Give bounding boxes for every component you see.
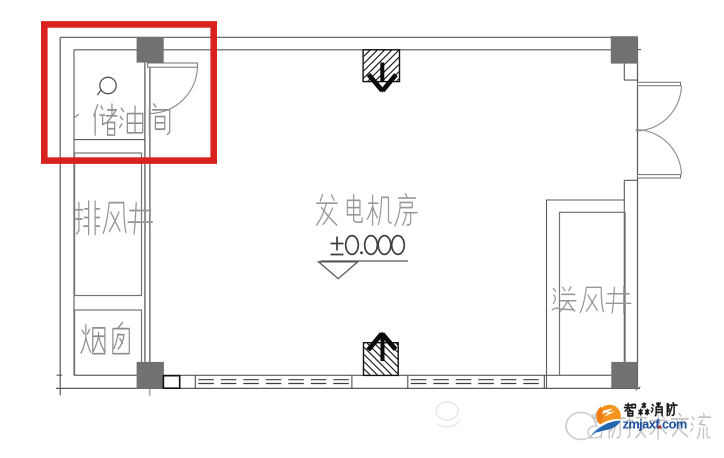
svg-text:zmjaxf.com: zmjaxf.com [623, 416, 687, 431]
